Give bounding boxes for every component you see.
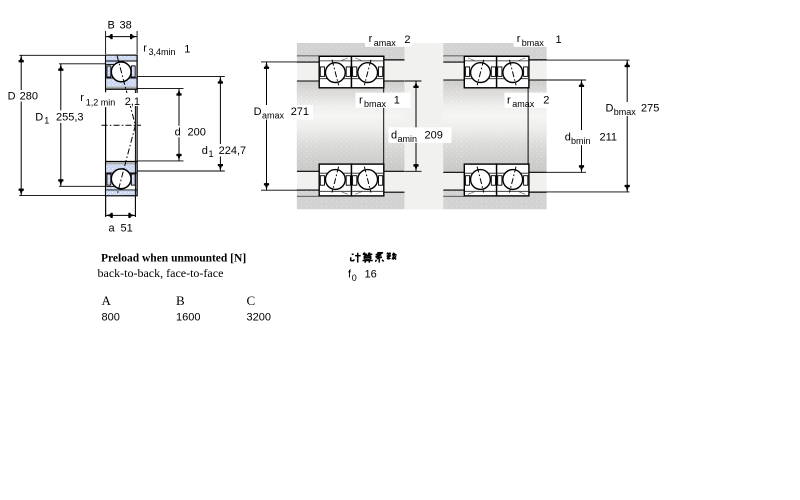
- svg-text:3200: 3200: [247, 312, 271, 324]
- svg-text:bmin: bmin: [571, 136, 591, 146]
- svg-text:amax: amax: [512, 99, 535, 109]
- svg-text:3,4min: 3,4min: [149, 47, 176, 57]
- svg-text:2,1: 2,1: [125, 96, 140, 108]
- svg-text:back-to-back, face-to-face: back-to-back, face-to-face: [98, 266, 224, 280]
- svg-text:1: 1: [184, 44, 190, 56]
- svg-text:38: 38: [120, 20, 132, 32]
- svg-text:D: D: [254, 106, 262, 118]
- svg-text:r: r: [359, 95, 363, 107]
- svg-text:r: r: [507, 95, 511, 107]
- svg-text:d: d: [565, 131, 571, 143]
- svg-text:51: 51: [121, 223, 133, 235]
- svg-text:r: r: [143, 43, 147, 55]
- svg-text:d: d: [175, 126, 181, 138]
- svg-text:0: 0: [352, 273, 357, 283]
- svg-text:d: d: [391, 130, 397, 142]
- svg-text:800: 800: [102, 312, 120, 324]
- svg-text:211: 211: [600, 131, 618, 143]
- svg-text:B: B: [176, 293, 185, 308]
- svg-text:d: d: [202, 145, 208, 157]
- svg-text:209: 209: [425, 130, 443, 142]
- svg-text:271: 271: [291, 106, 309, 118]
- svg-text:255,3: 255,3: [56, 111, 84, 123]
- svg-text:1,2 min: 1,2 min: [86, 98, 116, 108]
- svg-text:2: 2: [543, 95, 549, 107]
- svg-text:amin: amin: [398, 134, 418, 144]
- svg-text:16: 16: [365, 268, 377, 280]
- svg-text:A: A: [102, 293, 112, 308]
- svg-text:1: 1: [44, 115, 49, 125]
- svg-text:2: 2: [404, 34, 410, 46]
- svg-text:bmax: bmax: [614, 107, 637, 117]
- svg-text:1: 1: [394, 95, 400, 107]
- svg-text:1600: 1600: [176, 312, 200, 324]
- svg-text:1: 1: [556, 34, 562, 46]
- svg-text:r: r: [369, 33, 373, 45]
- svg-text:amax: amax: [374, 38, 397, 48]
- svg-text:D: D: [606, 102, 614, 114]
- svg-text:r: r: [80, 92, 84, 104]
- svg-text:a: a: [109, 223, 116, 235]
- svg-text:D: D: [35, 111, 43, 123]
- svg-text:Preload when unmounted [N]: Preload when unmounted [N]: [101, 253, 246, 265]
- svg-text:275: 275: [641, 102, 659, 114]
- svg-text:B: B: [108, 20, 115, 32]
- svg-text:bmax: bmax: [522, 38, 545, 48]
- svg-text:224,7: 224,7: [219, 145, 247, 157]
- svg-text:280: 280: [20, 91, 38, 103]
- svg-text:r: r: [517, 33, 521, 45]
- svg-text:1: 1: [209, 149, 214, 159]
- svg-text:bmax: bmax: [364, 99, 387, 109]
- svg-text:C: C: [247, 293, 256, 308]
- svg-text:D: D: [8, 91, 16, 103]
- svg-text:200: 200: [188, 126, 206, 138]
- svg-text:amax: amax: [262, 111, 285, 121]
